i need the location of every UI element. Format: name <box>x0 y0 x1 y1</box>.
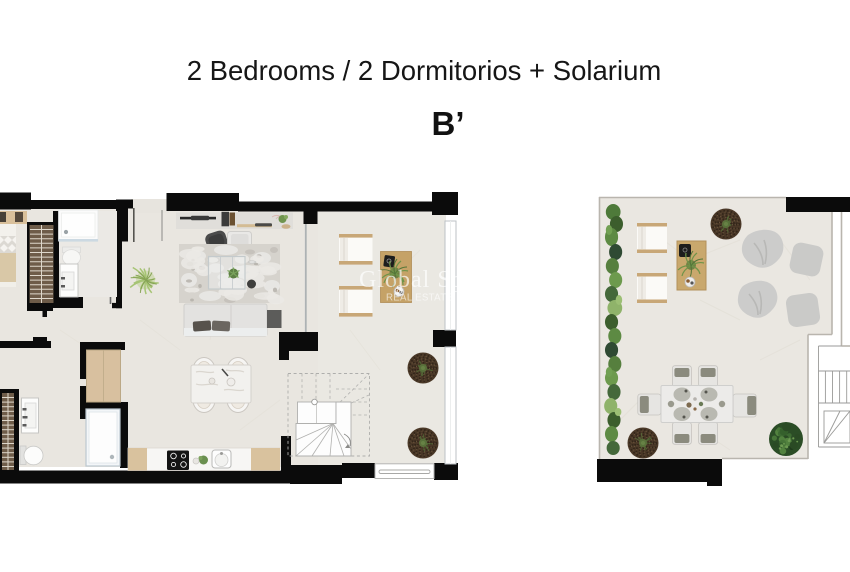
svg-text:B’: B’ <box>432 105 465 142</box>
svg-text:2 Bedrooms / 2 Dormitorios + S: 2 Bedrooms / 2 Dormitorios + Solarium <box>187 55 662 86</box>
svg-text:REAL ESTATE: REAL ESTATE <box>386 293 453 304</box>
svg-text:Global Sp: Global Sp <box>359 267 465 293</box>
